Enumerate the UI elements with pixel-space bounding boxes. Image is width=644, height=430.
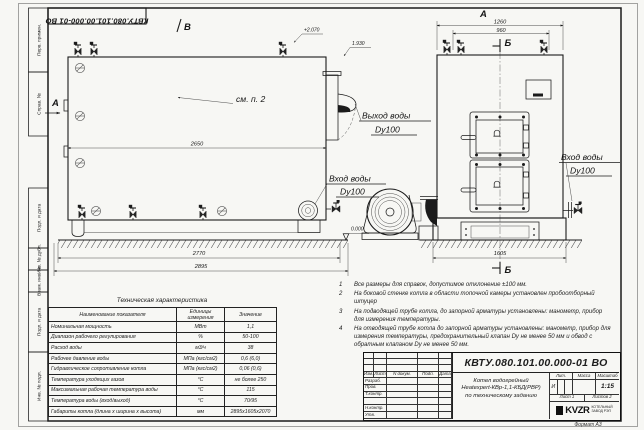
- mass-value: [572, 380, 595, 395]
- note-text: На отводящей трубе котла до запорной арм…: [354, 325, 623, 350]
- spec-units: %: [177, 332, 225, 343]
- sling-point-icon: [75, 158, 84, 167]
- dim-1605: 1605: [494, 251, 507, 257]
- role-razrab: Разраб.: [364, 378, 387, 385]
- company-logo-text: KVZR: [565, 405, 589, 416]
- spec-value: 2895х1605х2070: [225, 406, 277, 417]
- product-name-line1: Котел водогрейный: [453, 378, 549, 385]
- boiler-side-view: [64, 42, 356, 237]
- spec-name: Гидравлическое сопротивление котла: [49, 364, 177, 375]
- boiler-base: [433, 218, 566, 240]
- note-text: На подводящей трубе котла, до запорной а…: [354, 308, 623, 324]
- outlet-duct: [326, 75, 338, 140]
- table-row: Температура воды (вход/выход)°С70/95: [49, 396, 277, 407]
- note-text: Все размеры для справок, допустимое откл…: [354, 281, 623, 289]
- spec-value: 115: [225, 385, 277, 396]
- valve-icon: [199, 205, 206, 220]
- stamp-doc-number: КВТУ.080.101.00.000-01 ВО: [452, 353, 619, 373]
- blower-fan: [362, 189, 421, 240]
- spec-value: 1,1: [225, 322, 277, 333]
- dim-1260: 1260: [494, 20, 507, 26]
- format-label: Формат А3: [553, 422, 623, 428]
- table-row: Рабочее давление водыМПа (кгс/см2)0,6 (6…: [49, 353, 277, 364]
- spec-value: 50-100: [225, 332, 277, 343]
- spec-name: Рабочее давление воды: [49, 353, 177, 364]
- ground-line: [58, 240, 582, 248]
- spec-name: Температура уходящих газов: [49, 374, 177, 385]
- inlet-front-callout-line2: Dy100: [340, 187, 365, 197]
- spec-table: Наименование показателя Единицы измерени…: [48, 307, 277, 417]
- sling-point-icon: [75, 111, 84, 120]
- spec-value: 70/95: [225, 396, 277, 407]
- note-item: 3 На подводящей трубе котла, до запорной…: [336, 308, 623, 324]
- margin-label: Перв. примен.: [37, 24, 43, 56]
- view-arrow-a-label: А: [51, 98, 59, 109]
- valve-icon: [574, 202, 582, 214]
- valve-icon: [540, 40, 547, 55]
- valve-icon: [332, 200, 340, 212]
- door-handle-icon: [493, 181, 500, 187]
- table-row: Расход водым3/ч38: [49, 343, 277, 354]
- door-handle-icon: [493, 130, 500, 136]
- margin-label: Взам. инв. №: [37, 266, 43, 296]
- spec-units: мм: [177, 406, 225, 417]
- spec-header-units: Единицы измерения: [177, 308, 225, 322]
- note-number: 2: [336, 290, 354, 306]
- elevation-1930: 1.930: [352, 41, 365, 47]
- note-number: 1: [336, 281, 354, 289]
- note-item: 4 На отводящей трубе котла до запорной а…: [336, 325, 623, 350]
- note-number: 4: [336, 325, 354, 350]
- dim-2770: 2770: [192, 251, 206, 257]
- table-row: Диапазон рабочего регулирования%50-100: [49, 332, 277, 343]
- spec-units: °С: [177, 374, 225, 385]
- spec-name: Габариты котла (длина х ширина х высота): [49, 406, 177, 417]
- inlet-side-callout-line1: Вход воды: [561, 152, 603, 162]
- spec-name: Температура воды (вход/выход): [49, 396, 177, 407]
- stamp-lit-block: Лит. Масса Масштаб И 1:15 Лист 1 Листов …: [549, 373, 619, 419]
- valve-icon: [78, 205, 85, 220]
- margin-label: Справ. №: [37, 93, 43, 115]
- view-arrow-v-label: В: [184, 22, 191, 33]
- table-row: Максимальная рабочая температура воды°С1…: [49, 385, 277, 396]
- valve-icon: [74, 42, 81, 57]
- upper-furnace-door: [461, 112, 529, 158]
- note-number: 3: [336, 308, 354, 324]
- scale-value: 1:15: [595, 380, 619, 395]
- dim-2650: 2650: [190, 142, 204, 148]
- spec-units: м3/ч: [177, 343, 225, 354]
- role-tkontr: Т.контр.: [364, 392, 387, 399]
- stamp-product-name: Котел водогрейный Heatexpert-КВр-1,1-КБД…: [452, 373, 549, 419]
- valve-icon: [457, 40, 464, 55]
- spec-units: МПа (кгс/см2): [177, 364, 225, 375]
- margin-label: Инв. № подл.: [37, 371, 43, 401]
- spec-units: МВт: [177, 322, 225, 333]
- spec-value: 0,6 (6,0): [225, 353, 277, 364]
- outlet-callout-line1: Выход воды: [362, 111, 411, 121]
- company-name-line2: ЗАВОД РЭП: [592, 410, 613, 414]
- role-utv: Утв.: [364, 412, 387, 419]
- doc-number-rotated: КВТУ.080.101.00.000-01 ВО: [45, 17, 148, 26]
- note-item: 2 На боковой стенке котла в области топо…: [336, 290, 623, 306]
- margin-label: Подп. и дата: [37, 204, 43, 233]
- see-note-ref: см. п. 2: [236, 94, 265, 104]
- valve-icon: [443, 40, 450, 55]
- spec-units: °С: [177, 385, 225, 396]
- inlet-side-stub: [563, 202, 582, 219]
- spec-name: Номинальная мощность: [49, 322, 177, 333]
- spec-table-title: Техническая характеристика: [48, 297, 276, 304]
- inlet-flange: [299, 201, 318, 220]
- notes-block: 1 Все размеры для справок, допустимое от…: [336, 281, 623, 351]
- elevation-plus2070: +2.070: [304, 28, 320, 34]
- spec-value: не более 250: [225, 374, 277, 385]
- spec-name: Максимальная рабочая температура воды: [49, 385, 177, 396]
- title-block: Изм. Лист N докум. Подп. Дата Разраб. Пр…: [363, 352, 621, 421]
- section-b-bottom-label: Б: [505, 265, 512, 276]
- drawing-sheet: Перв. примен. Справ. № Подп. и дата Инв.…: [0, 0, 644, 430]
- sling-point-icon: [91, 206, 100, 215]
- inlet-front-callout-line1: Вход воды: [329, 174, 371, 184]
- table-row: Габариты котла (длина х ширина х высота)…: [49, 406, 277, 417]
- company-cell: KVZR КОТЕЛЬНЫЙ ЗАВОД РЭП: [549, 402, 619, 420]
- view-a-title: А: [479, 9, 487, 20]
- margin-label: Подп. и дата: [37, 308, 43, 337]
- valve-icon: [90, 42, 97, 57]
- doc-number-top-box: КВТУ.080.101.00.000-01 ВО: [45, 8, 148, 26]
- dim-2895: 2895: [194, 264, 208, 270]
- product-name-line2: Heatexpert-КВр-1,1-КБД(РВР): [453, 385, 549, 392]
- section-b-top-label: Б: [505, 38, 512, 49]
- sling-point-icon: [75, 63, 84, 72]
- valve-icon: [279, 42, 286, 57]
- company-name: КОТЕЛЬНЫЙ ЗАВОД РЭП: [592, 406, 613, 414]
- spec-name: Диапазон рабочего регулирования: [49, 332, 177, 343]
- valve-icon: [129, 205, 136, 220]
- lit-value: И: [549, 380, 557, 395]
- sheet-number: Лист 1: [549, 395, 584, 402]
- margin-stamps: Перв. примен. Справ. № Подп. и дата Инв.…: [29, 8, 49, 421]
- spec-name: Расход воды: [49, 343, 177, 354]
- role-prov: Пров.: [364, 385, 387, 392]
- role-nkontr: Н.контр.: [364, 405, 387, 412]
- table-row: Гидравлическое сопротивление котлаМПа (к…: [49, 364, 277, 375]
- note-item: 1 Все размеры для справок, допустимое от…: [336, 281, 623, 289]
- spec-table-block: Техническая характеристика Наименование …: [48, 297, 276, 417]
- spec-units: МПа (кгс/см2): [177, 353, 225, 364]
- note-text: На боковой стенке котла в области топочн…: [354, 290, 623, 306]
- boiler-front-view: А 1260 960 Б: [433, 9, 620, 276]
- sheet-total: Листов 2: [584, 395, 619, 402]
- sling-point-icon: [217, 206, 226, 215]
- lower-furnace-door: [461, 160, 529, 212]
- spec-header-row: Наименование показателя Единицы измерени…: [49, 308, 277, 322]
- spec-value: 0,06 (0,6): [225, 364, 277, 375]
- spec-header-value: Значение: [225, 308, 277, 322]
- spec-units: °С: [177, 396, 225, 407]
- inlet-side-callout-line2: Dy100: [570, 166, 595, 176]
- company-logo-icon: [556, 406, 563, 415]
- spec-header-name: Наименование показателя: [49, 308, 177, 322]
- table-row: Температура уходящих газов°Сне более 250: [49, 374, 277, 385]
- product-name-line3: по техническому заданию: [453, 393, 549, 400]
- elevation-zero: 0.000: [351, 227, 364, 233]
- spec-value: 38: [225, 343, 277, 354]
- table-row: Номинальная мощностьМВт1,1: [49, 322, 277, 333]
- stamp-signature-grid: Изм. Лист N докум. Подп. Дата Разраб. Пр…: [364, 353, 452, 419]
- outlet-callout-line2: Dy100: [375, 125, 400, 135]
- dim-960: 960: [496, 28, 506, 34]
